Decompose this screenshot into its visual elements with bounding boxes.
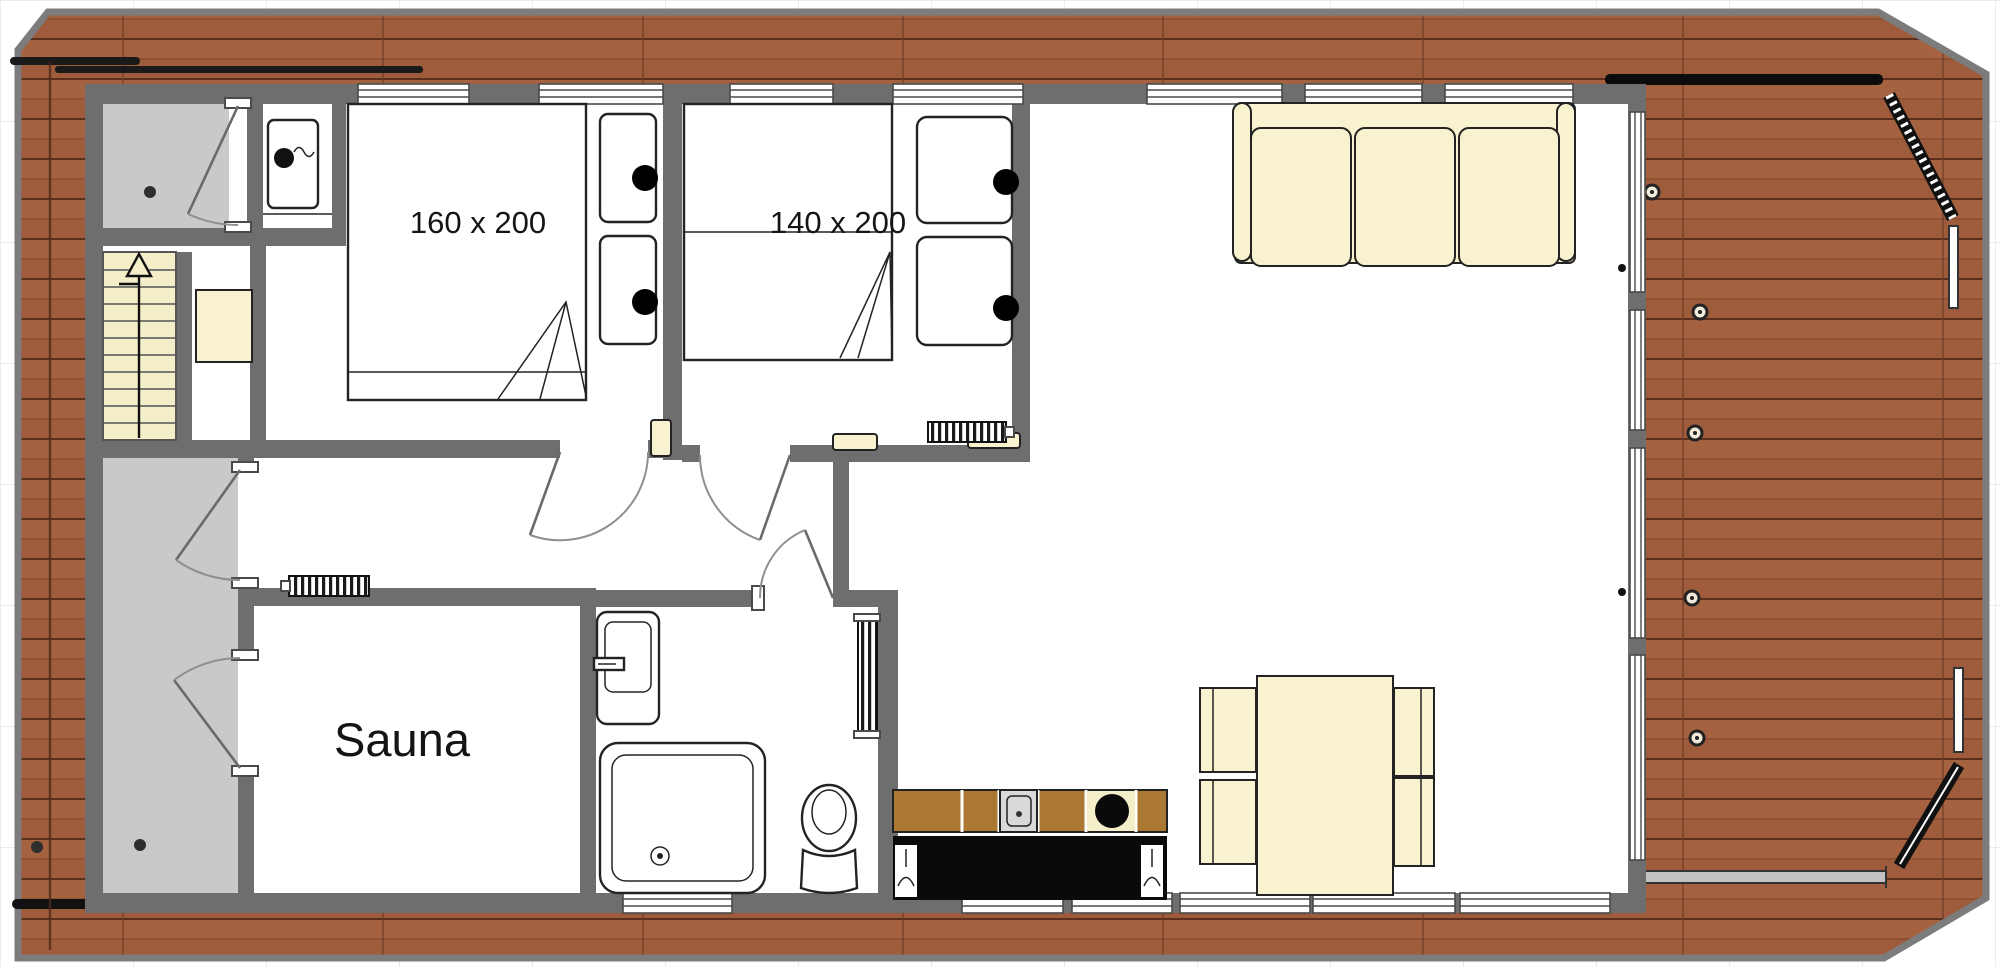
door-handle-icon (1618, 588, 1626, 596)
sauna-label: Sauna (334, 713, 471, 766)
lamp-icon (632, 289, 658, 315)
wardrobe (196, 290, 252, 362)
chair (1394, 778, 1434, 866)
bed-160x200 (348, 104, 586, 400)
radiator-icon (289, 576, 369, 596)
gangway-bar-icon (10, 57, 140, 65)
bed-size-label: 160 x 200 (410, 205, 546, 240)
kitchen (893, 790, 1167, 900)
lamp-icon (632, 165, 658, 191)
bed-size-label: 140 x 200 (770, 205, 906, 240)
dining-set (1200, 676, 1434, 895)
floor-drain (144, 186, 156, 198)
lamp-icon (993, 295, 1019, 321)
radiator-icon (928, 422, 1006, 442)
water-heater (268, 120, 318, 208)
tap-icon (895, 845, 917, 897)
hob-icon (1095, 794, 1129, 828)
chair (1200, 780, 1256, 864)
chair (1200, 688, 1256, 772)
towel-radiator-icon (858, 620, 877, 732)
washbasin (594, 612, 659, 724)
deck-bench-icon (1612, 871, 1886, 883)
floor-plan-canvas: 160 x 200 140 x 200 Sauna (0, 0, 2000, 967)
sofa (1233, 103, 1575, 266)
railing-bar-icon (1605, 74, 1883, 85)
shower-tray (600, 743, 765, 893)
stairs (103, 252, 176, 440)
door-handle-icon (1618, 264, 1626, 272)
nightstand (917, 237, 1012, 345)
floor-drain (134, 839, 146, 851)
gangway-bar-icon (55, 66, 423, 73)
chair (1394, 688, 1434, 776)
lamp-icon (993, 169, 1019, 195)
nightstand (917, 117, 1012, 223)
sauna-room: Sauna (334, 713, 471, 766)
tap-icon (1141, 845, 1163, 897)
heater-motor-icon (274, 148, 294, 168)
kitchen-counter (893, 836, 1167, 900)
deck-light (31, 841, 43, 853)
railing-segment-icon (1949, 226, 1958, 308)
railing-segment-icon (1954, 668, 1963, 752)
toilet (801, 785, 857, 893)
floor-plan-drawing: 160 x 200 140 x 200 Sauna (0, 0, 2000, 967)
dining-table (1257, 676, 1393, 895)
side-corridor-floor (103, 458, 238, 893)
